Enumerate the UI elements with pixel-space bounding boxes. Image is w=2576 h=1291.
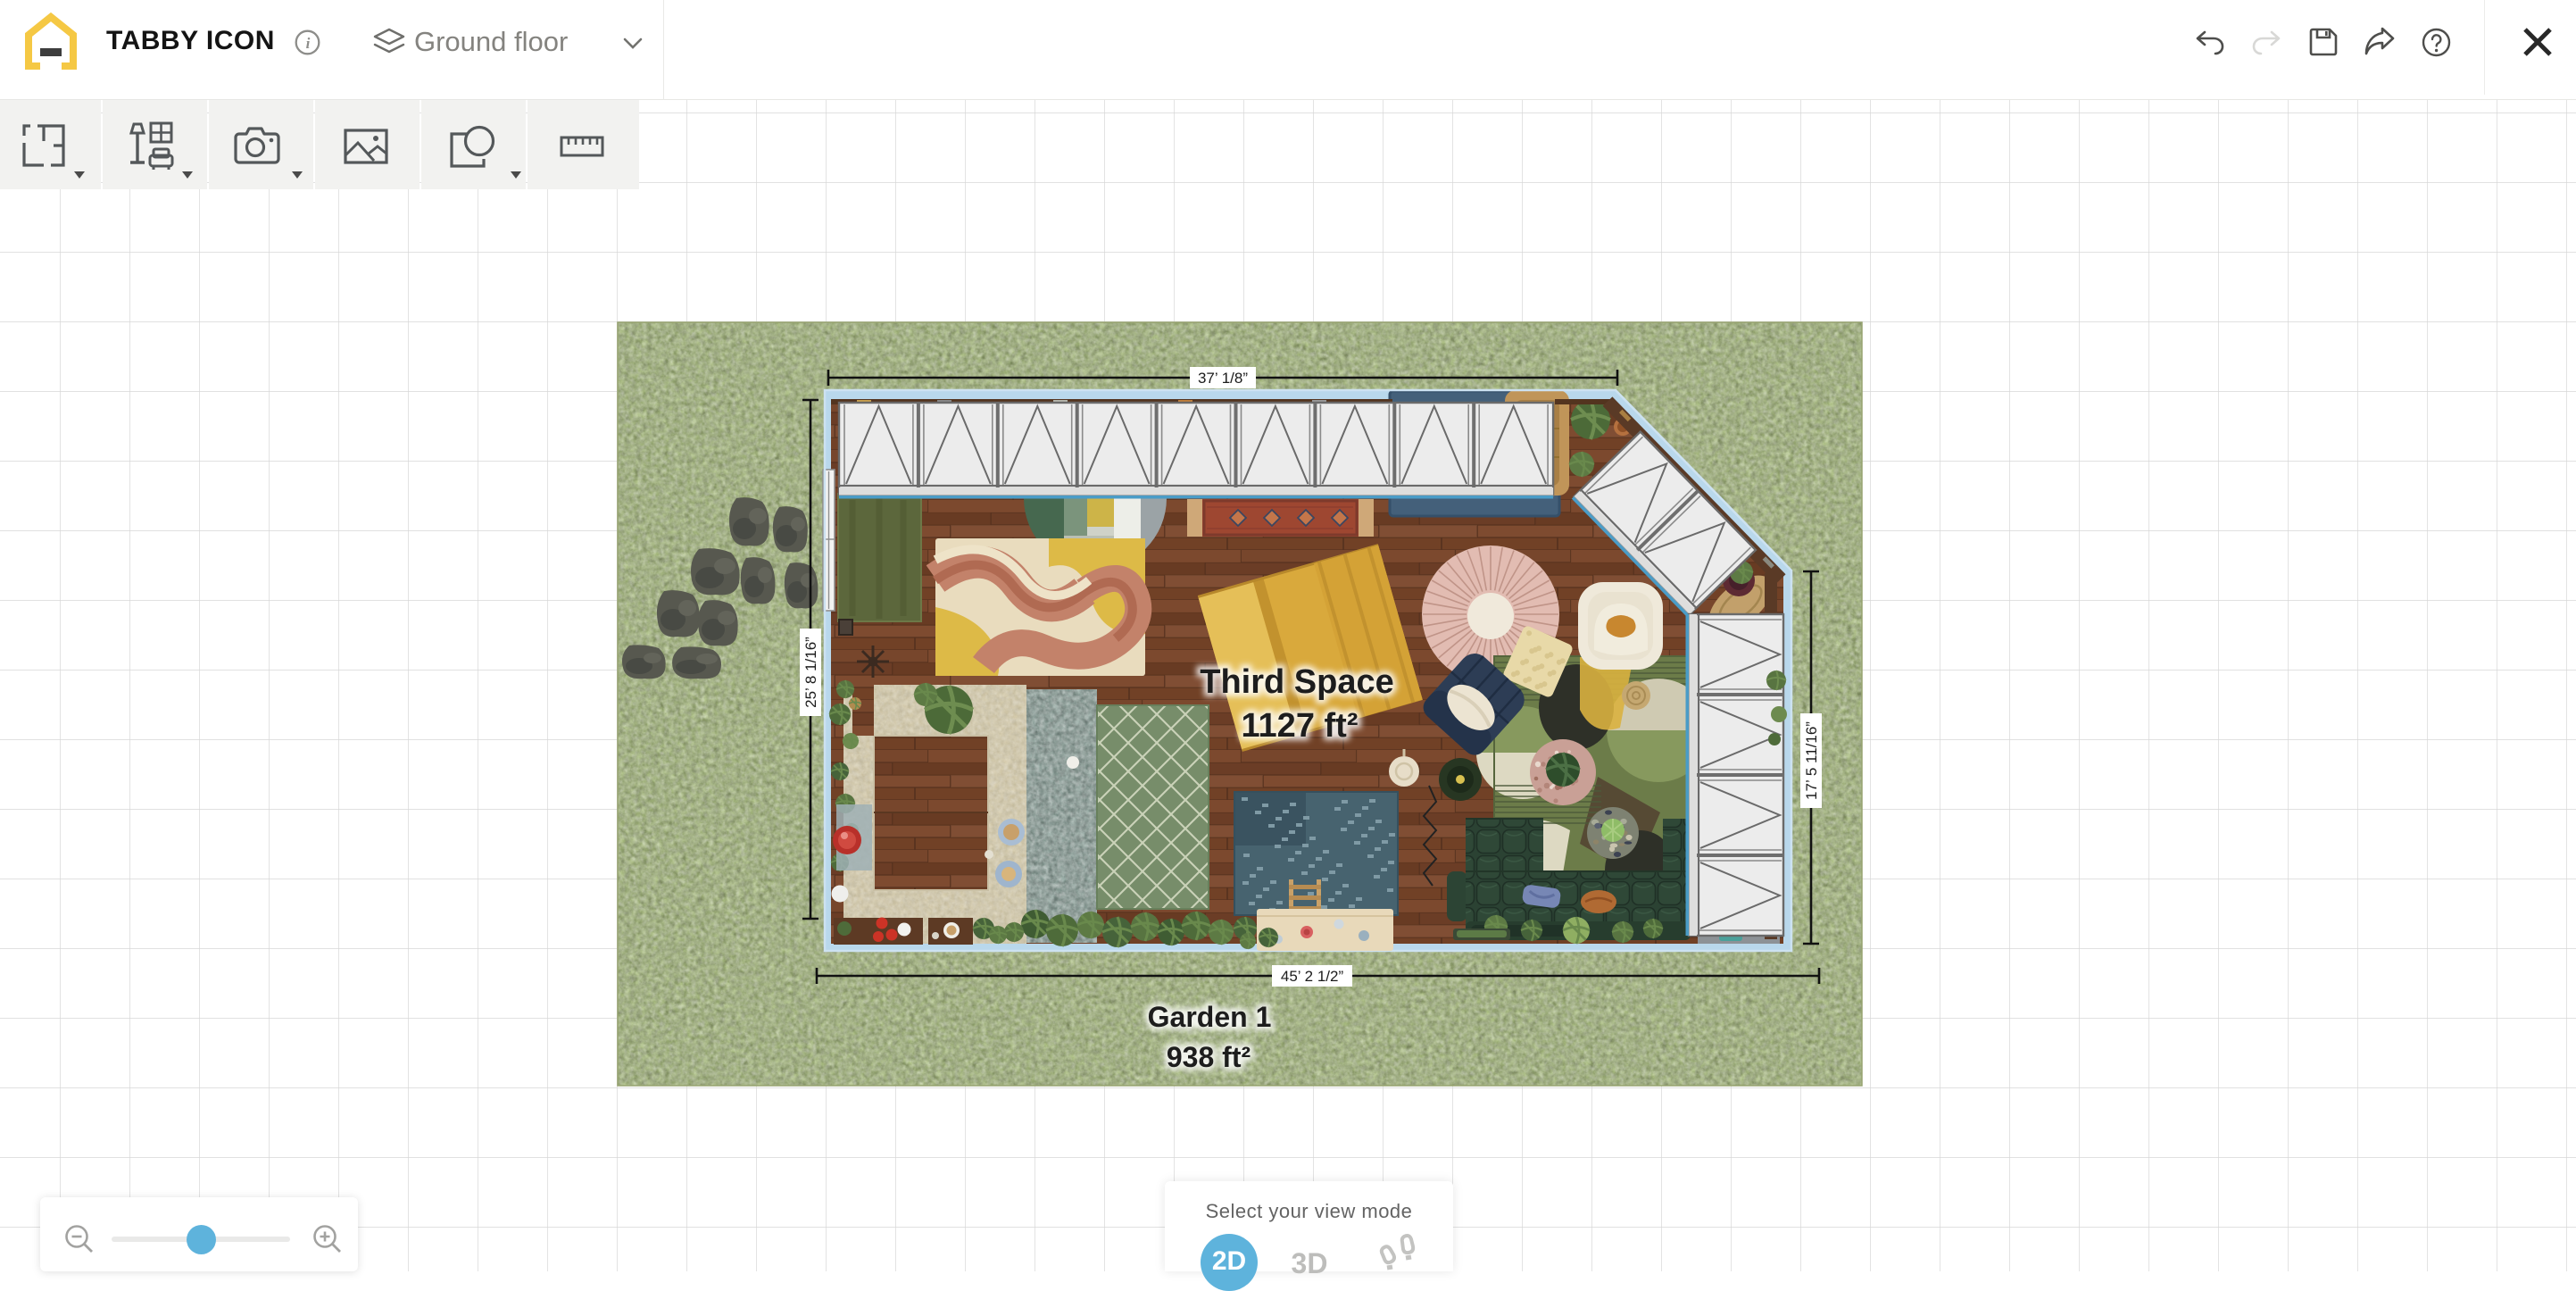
svg-text:17’ 5 11/16”: 17’ 5 11/16” (1803, 721, 1820, 800)
svg-text:i: i (306, 35, 311, 52)
svg-text:25’ 8 1/16”: 25’ 8 1/16” (802, 637, 819, 708)
svg-text:938 ft²: 938 ft² (1167, 1041, 1251, 1073)
svg-text:Third Space: Third Space (1200, 663, 1394, 701)
svg-text:1127 ft²: 1127 ft² (1242, 707, 1359, 745)
svg-text:37’ 1/8”: 37’ 1/8” (1198, 370, 1248, 387)
svg-text:Garden 1: Garden 1 (1148, 1001, 1272, 1033)
svg-text:45’ 2 1/2”: 45’ 2 1/2” (1281, 968, 1344, 985)
